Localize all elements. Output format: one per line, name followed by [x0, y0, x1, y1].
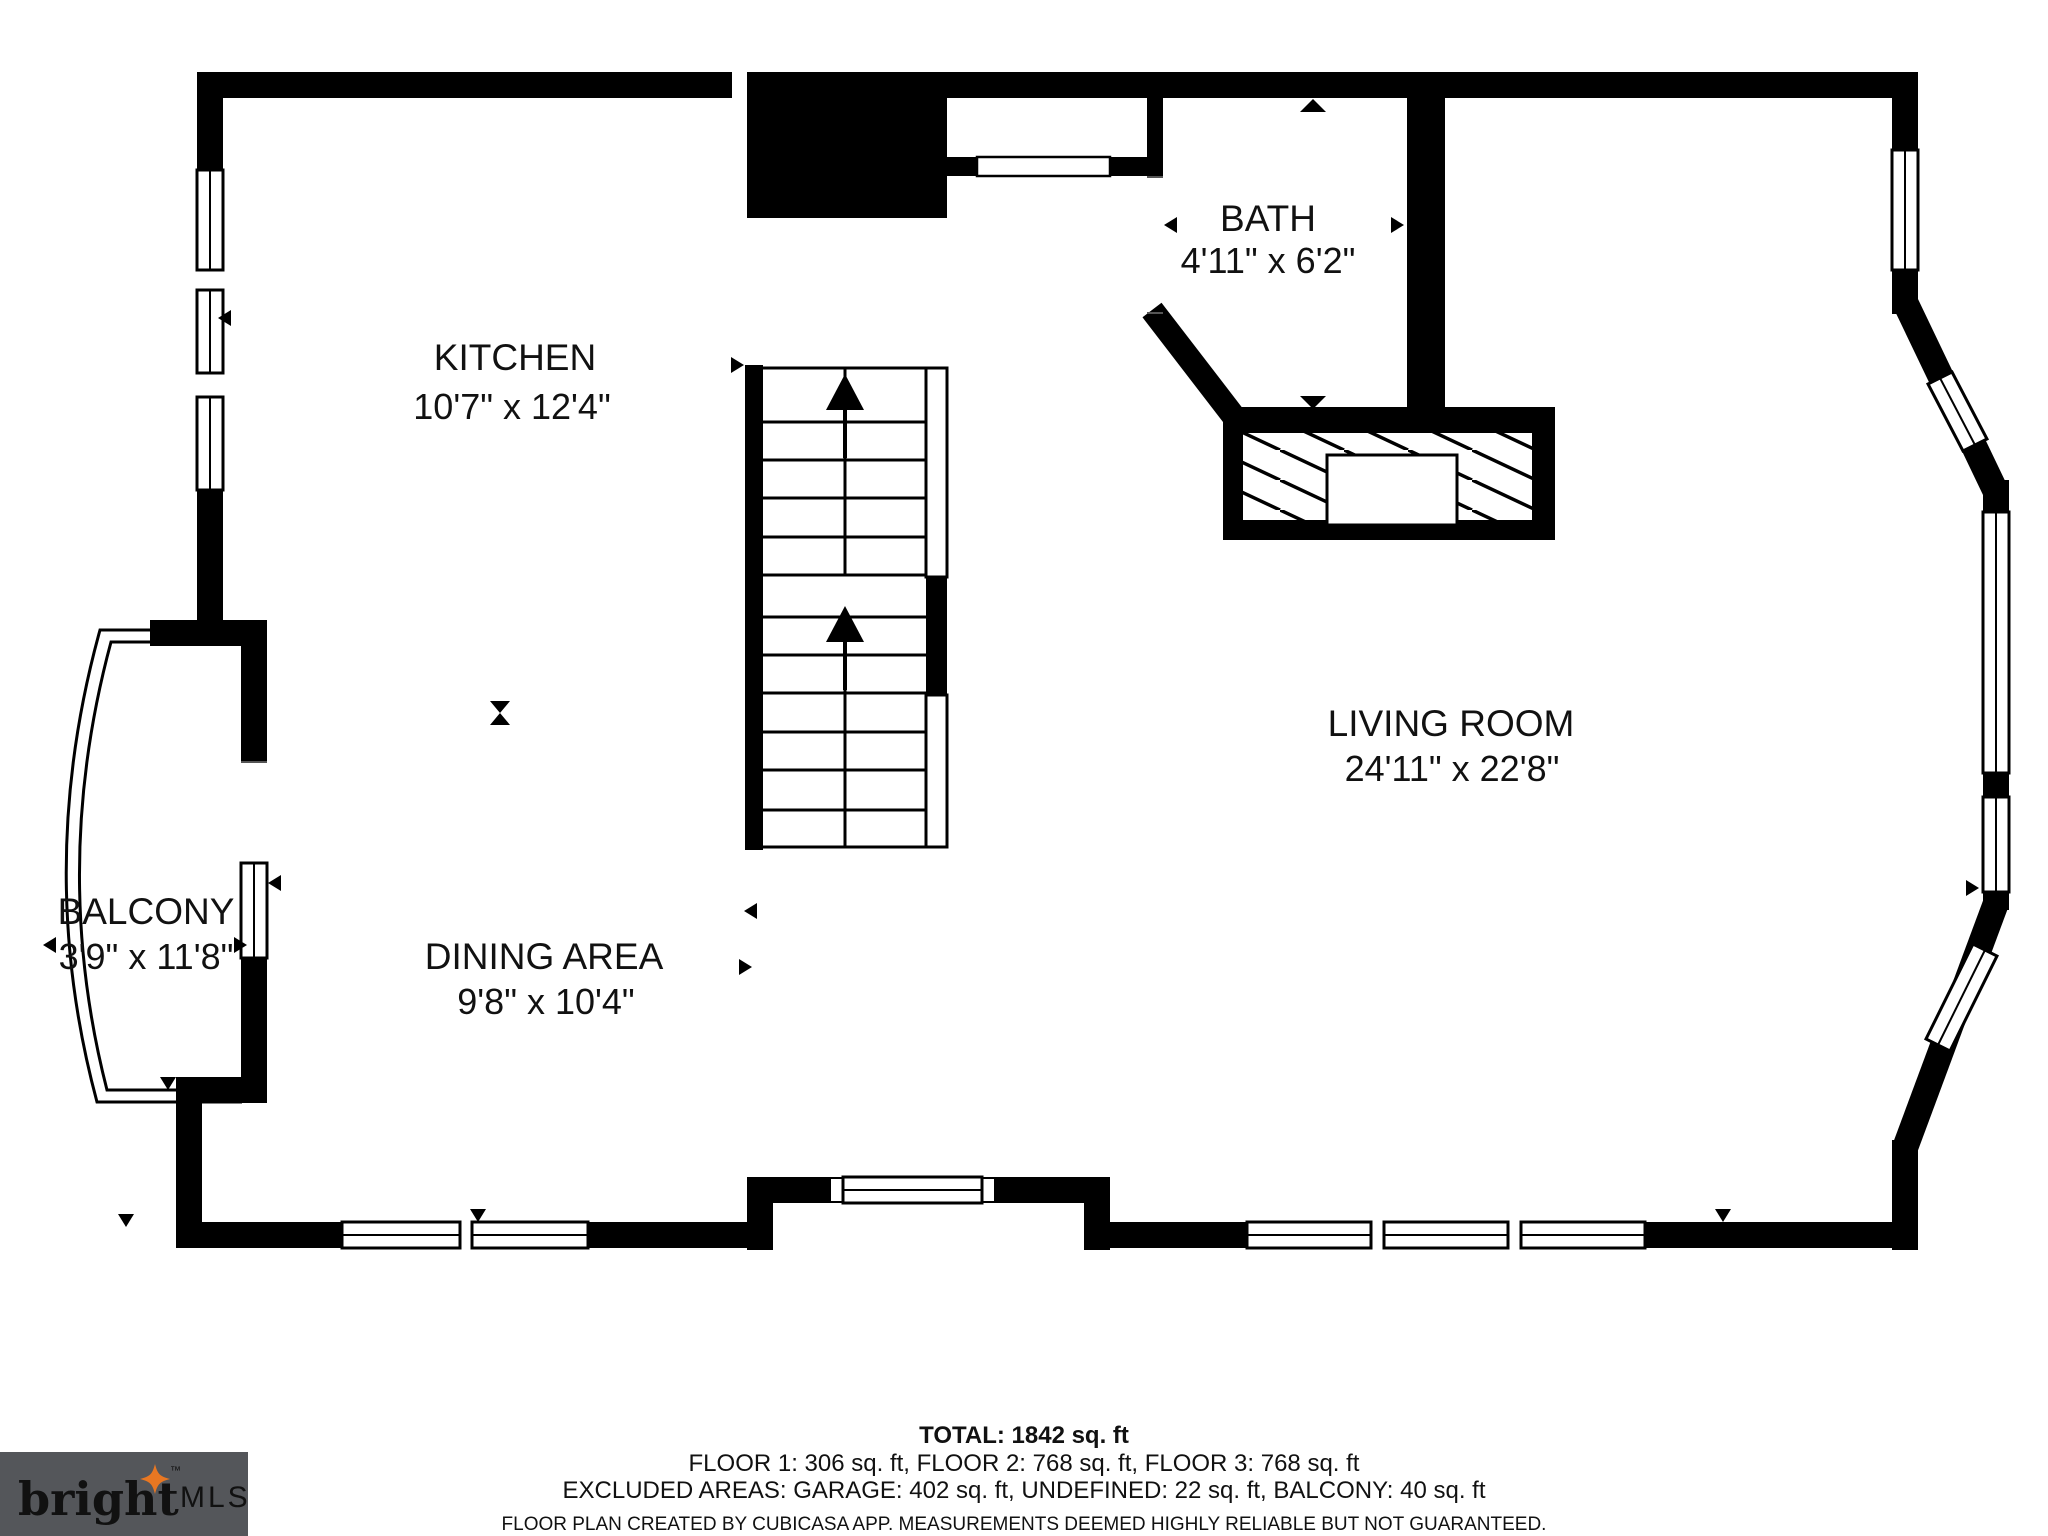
walls	[150, 72, 2009, 1250]
stair-banister-bottom	[926, 695, 947, 847]
staircase	[745, 365, 947, 850]
bottom-left-wall-marker	[470, 1209, 486, 1222]
total-area-text: TOTAL: 1842 sq. ft	[919, 1422, 1129, 1449]
fireplace	[1327, 455, 1457, 525]
living-room-label: LIVING ROOM	[1328, 703, 1575, 744]
room-labels: KITCHEN 10'7" x 12'4" BATH 4'11" x 6'2" …	[58, 198, 1575, 1022]
undefined-hatched-area	[1242, 432, 1533, 525]
bath-dims: 4'11" x 6'2"	[1181, 240, 1356, 281]
kitchen-marker-down	[490, 701, 510, 713]
balcony-marker-down	[160, 1077, 176, 1090]
dining-marker-left	[744, 903, 757, 919]
balcony-outer-marker-down	[118, 1214, 134, 1227]
bottom-right-wall-marker	[1715, 1209, 1731, 1222]
stair-banister-top	[926, 368, 947, 577]
stair-wall-mid	[926, 577, 947, 695]
balcony-window-marker	[268, 875, 281, 891]
balcony-door-opening	[241, 762, 267, 863]
disclaimer-text: FLOOR PLAN CREATED BY CUBICASA APP. MEAS…	[502, 1514, 1547, 1535]
footer-summary: TOTAL: 1842 sq. ft FLOOR 1: 306 sq. ft, …	[502, 1422, 1547, 1535]
kitchen-marker-up	[490, 713, 510, 725]
dining-windows	[342, 1222, 588, 1248]
balcony-dim-marker-left	[43, 937, 56, 953]
floor-plan-svg: KITCHEN 10'7" x 12'4" BATH 4'11" x 6'2" …	[0, 0, 2048, 1536]
balcony-label: BALCONY	[58, 891, 235, 932]
bath-label: BATH	[1220, 198, 1316, 239]
top-passage-opening	[977, 157, 1110, 176]
bath-marker-up	[1300, 99, 1326, 112]
dining-marker-right	[739, 959, 752, 975]
living-bottom-windows	[1247, 1222, 1645, 1248]
living-room-dims: 24'11" x 22'8"	[1345, 748, 1560, 789]
kitchen-dims: 10'7" x 12'4"	[413, 386, 610, 427]
logo-trademark: ™	[170, 1465, 181, 1477]
balcony-dims: 3'9" x 11'8"	[59, 936, 234, 977]
balcony-outline	[66, 630, 242, 1102]
kitchen-label: KITCHEN	[434, 337, 596, 378]
floor-plan-page: KITCHEN 10'7" x 12'4" BATH 4'11" x 6'2" …	[0, 0, 2048, 1536]
logo-mls-text: MLS	[180, 1481, 251, 1514]
bath-marker-left	[1164, 217, 1177, 233]
bath-door-opening	[1147, 177, 1163, 313]
dining-area-label: DINING AREA	[425, 936, 664, 977]
dimension-markers	[43, 99, 1979, 1227]
entry-door	[830, 1177, 995, 1203]
bay-window-marker	[1966, 880, 1979, 896]
excluded-areas-text: EXCLUDED AREAS: GARAGE: 402 sq. ft, UNDE…	[563, 1477, 1486, 1504]
floor-areas-text: FLOOR 1: 306 sq. ft, FLOOR 2: 768 sq. ft…	[689, 1450, 1360, 1477]
bright-mls-logo: bright ™ MLS	[0, 1452, 251, 1536]
left-wall-windows	[197, 170, 223, 490]
bath-marker-right	[1391, 217, 1404, 233]
dining-area-dims: 9'8" x 10'4"	[457, 981, 634, 1022]
windows	[197, 150, 2009, 1248]
stair-top-marker	[731, 357, 744, 373]
